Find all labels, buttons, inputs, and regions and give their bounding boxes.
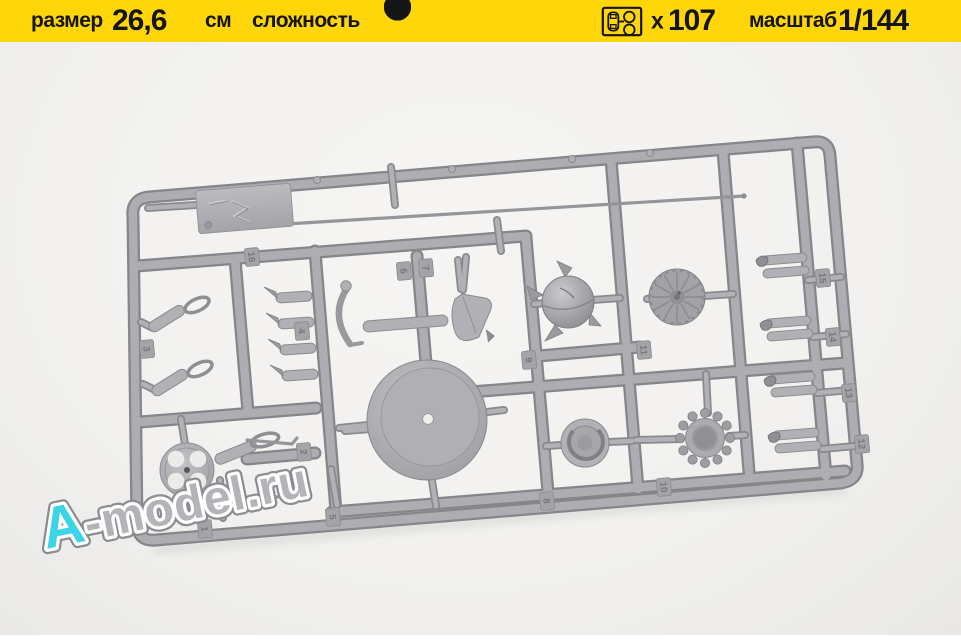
part-tag-9: 9 bbox=[521, 350, 537, 369]
size-unit: см bbox=[205, 9, 231, 33]
part-tag-13: 13 bbox=[841, 383, 857, 402]
svg-text:12: 12 bbox=[855, 438, 867, 449]
scale-value: 1/144 bbox=[838, 4, 908, 38]
difficulty-dot bbox=[384, 0, 411, 21]
part-tag-12: 12 bbox=[854, 434, 870, 453]
svg-text:14: 14 bbox=[826, 331, 838, 343]
svg-text:8: 8 bbox=[540, 498, 551, 504]
ribbed-dome-part bbox=[649, 269, 705, 325]
c-ring-part bbox=[561, 419, 609, 467]
gate-bump bbox=[449, 166, 456, 173]
part-tag-14: 14 bbox=[825, 327, 841, 346]
svg-text:16: 16 bbox=[245, 251, 257, 262]
scale-label: масштаб bbox=[749, 9, 837, 33]
part-tag-16: 16 bbox=[244, 247, 260, 266]
arc-antenna-part bbox=[339, 281, 362, 345]
base-disc-part bbox=[367, 360, 487, 480]
svg-text:13: 13 bbox=[842, 387, 854, 398]
part-tag-11: 11 bbox=[636, 340, 652, 359]
brand-plate-part bbox=[195, 183, 293, 234]
header-bar: размер 26,6 см сложность x 107 масштаб 1… bbox=[0, 0, 961, 42]
parts-count: 107 bbox=[668, 4, 715, 38]
svg-text:15: 15 bbox=[816, 272, 828, 284]
size-value: 26,6 bbox=[112, 4, 166, 38]
photo-area: 16673421591181015141312 A-model.ru A-mod… bbox=[0, 42, 961, 635]
part-tag-4: 4 bbox=[294, 321, 310, 340]
part-tag-3: 3 bbox=[139, 339, 155, 358]
size-label: размер bbox=[31, 9, 103, 33]
sprue-count-icon bbox=[601, 5, 643, 43]
sprue-photo: 16673421591181015141312 A-model.ru A-mod… bbox=[0, 42, 961, 635]
bell-cone-part bbox=[452, 294, 494, 342]
gate-bump bbox=[314, 177, 321, 184]
difficulty-label: сложность bbox=[252, 9, 360, 33]
part-tag-8: 8 bbox=[539, 491, 555, 510]
svg-text:6: 6 bbox=[397, 268, 408, 274]
beaded-ring-part bbox=[675, 408, 734, 467]
svg-text:10: 10 bbox=[657, 481, 669, 492]
svg-text:3: 3 bbox=[140, 346, 151, 352]
part-tag-7: 7 bbox=[418, 258, 434, 277]
part-tag-10: 10 bbox=[656, 477, 672, 496]
part-tag-6: 6 bbox=[396, 261, 412, 280]
parts-multiplier: x bbox=[651, 8, 664, 35]
part-tag-15: 15 bbox=[815, 268, 831, 287]
gate-bump bbox=[647, 150, 654, 157]
left-cylinder-parts bbox=[264, 287, 318, 381]
part-tag-5: 5 bbox=[325, 507, 341, 526]
svg-text:7: 7 bbox=[419, 265, 430, 271]
bar-part bbox=[363, 315, 449, 333]
svg-text:11: 11 bbox=[637, 345, 649, 357]
svg-text:9: 9 bbox=[522, 357, 533, 363]
gate-bump bbox=[569, 156, 576, 163]
